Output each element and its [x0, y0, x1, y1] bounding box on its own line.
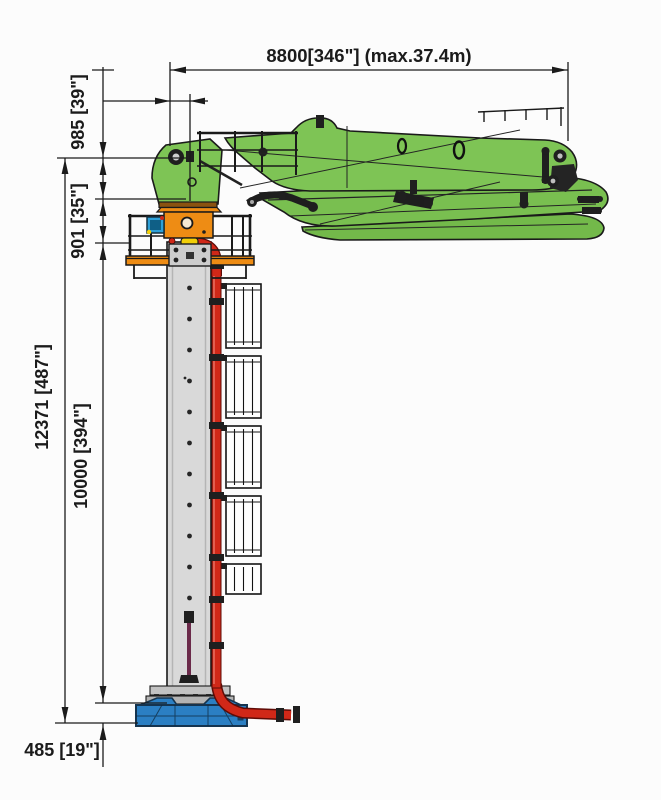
boom-head-railing — [478, 107, 564, 126]
mast — [167, 242, 211, 688]
dim-boom-height-label: 985 [39"] — [68, 74, 88, 150]
dim-mast-height-label: 10000 [394"] — [71, 403, 91, 509]
dim-turret-height-label: 901 [35"] — [68, 183, 88, 259]
dim-mast-height: 10000 [394"] — [71, 245, 106, 701]
cage-section — [219, 495, 261, 556]
dim-reach-label: 8800[346"] (max.37.4m) — [266, 45, 471, 66]
dim-turret-height: 901 [35"] — [68, 160, 106, 259]
cage-section — [219, 563, 261, 594]
dim-reach: 8800[346"] (max.37.4m) — [170, 45, 568, 146]
folded-boom — [152, 107, 608, 240]
cage-section — [219, 355, 261, 418]
cage-section — [219, 425, 261, 488]
turret-hole — [182, 218, 193, 229]
boom-pivot-bracket — [152, 139, 222, 204]
placing-boom-drawing: 8800[346"] (max.37.4m) 985 [39"] — [0, 0, 661, 800]
dim-overall-height: 12371 [487"] — [32, 158, 68, 723]
mast-cage-sections — [219, 283, 261, 594]
dim-base-height: 485 [19"] — [24, 723, 106, 767]
drawing-svg: 8800[346"] (max.37.4m) 985 [39"] — [0, 0, 661, 800]
dim-base-height-label: 485 [19"] — [24, 740, 100, 760]
dim-overall-height-label: 12371 [487"] — [32, 344, 52, 450]
dim-boom-height: 985 [39"] — [68, 67, 106, 703]
cage-section — [219, 283, 261, 348]
